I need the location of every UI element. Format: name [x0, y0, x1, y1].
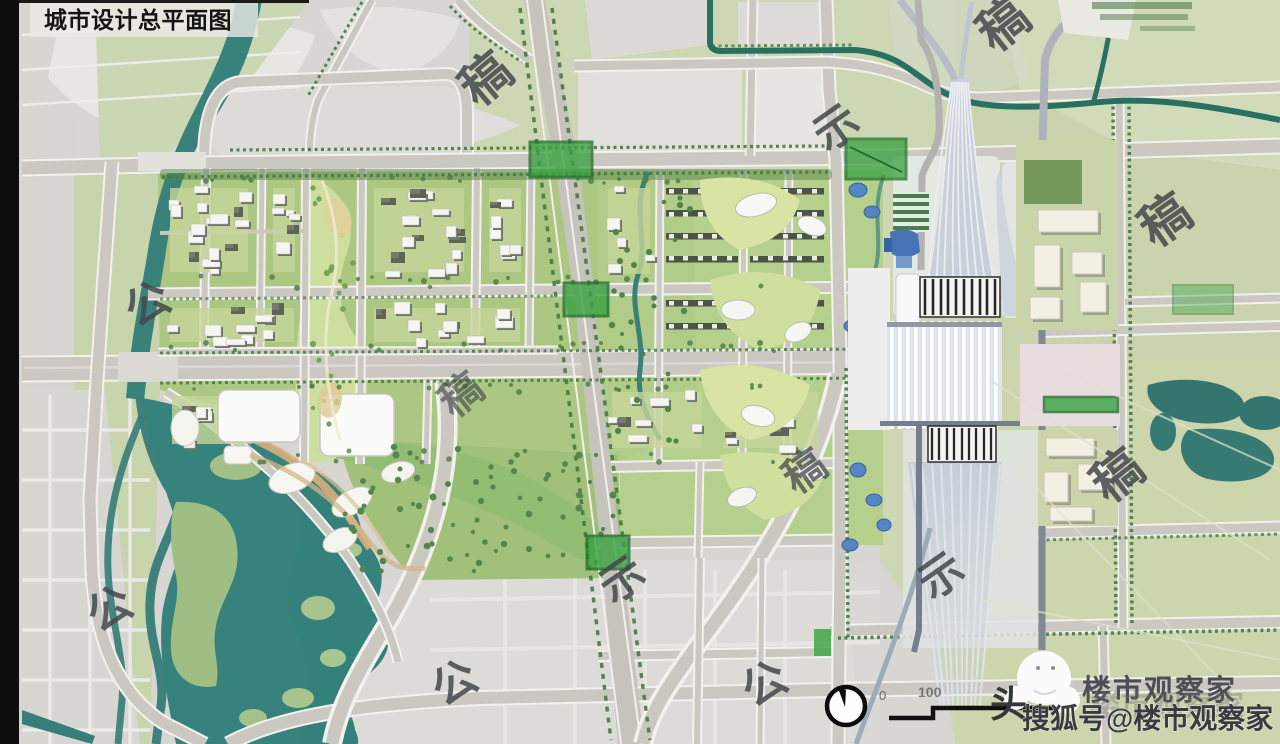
svg-text:搜狐号@楼市观察家: 搜狐号@楼市观察家 — [1022, 702, 1273, 734]
svg-text:城市设计总平面图: 城市设计总平面图 — [44, 7, 232, 33]
svg-text:100: 100 — [918, 684, 942, 700]
svg-text:0: 0 — [879, 688, 886, 703]
